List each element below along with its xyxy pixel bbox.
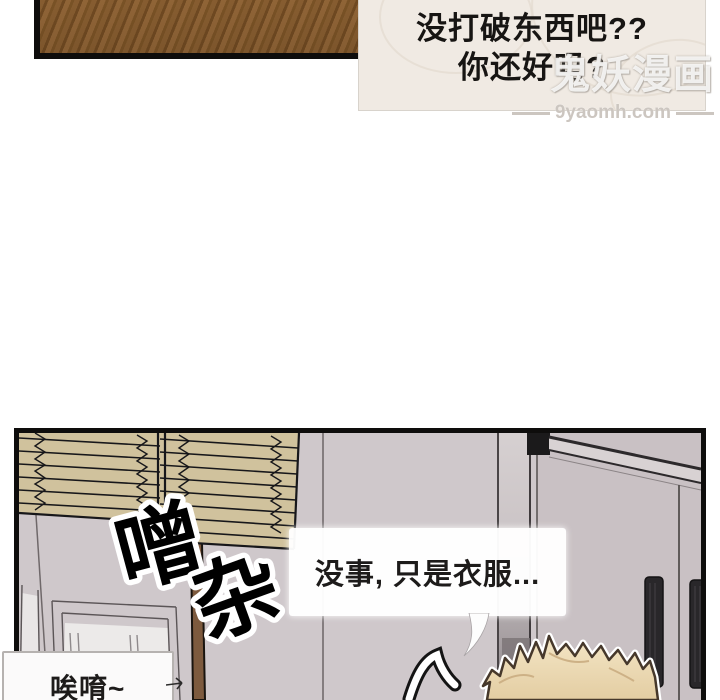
watermark-site-url: 9yaomh.com (555, 102, 671, 124)
wood-floor-panel (34, 0, 364, 59)
door-frame-corner (527, 433, 550, 455)
watermark-dash (676, 112, 714, 115)
comic-page: 没打破东西吧?? 你还好吗? 鬼妖漫画 9yaomh.com (0, 0, 720, 700)
arrow-mark (166, 676, 188, 692)
watermark-dash (512, 112, 550, 115)
left-speech-bubble: 唉唷~ (2, 651, 174, 700)
right-speech-bubble: 没事, 只是衣服... (289, 528, 566, 616)
watermark-site-name: 鬼妖漫画 (512, 42, 714, 100)
speech-bubble-tail (462, 613, 496, 660)
right-bubble-text: 没事, 只是衣服... (315, 551, 540, 593)
left-bubble-text: 唉唷~ (50, 673, 125, 700)
door-handle (690, 580, 701, 688)
site-watermark: 鬼妖漫画 9yaomh.com (512, 42, 714, 124)
